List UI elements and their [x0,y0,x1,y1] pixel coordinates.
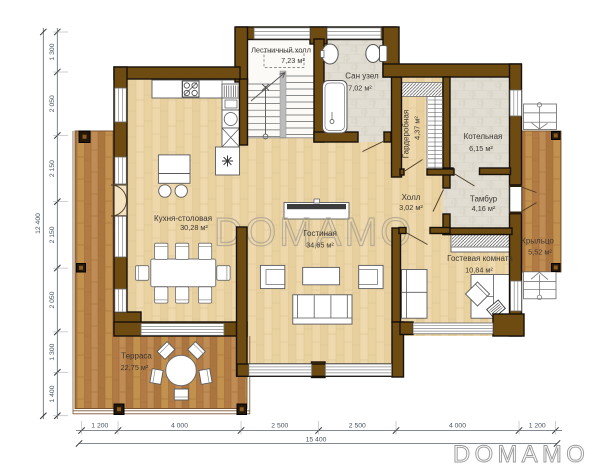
svg-text:DOMAMO: DOMAMO [453,441,589,468]
svg-text:4 000: 4 000 [171,423,188,430]
svg-text:2 050: 2 050 [49,291,56,308]
svg-text:34,65 м²: 34,65 м² [306,241,334,250]
svg-text:Кухня-столовая: Кухня-столовая [154,214,212,223]
svg-text:6,15 м²: 6,15 м² [469,144,493,153]
svg-text:5,52 м²: 5,52 м² [528,248,552,257]
svg-text:Гостиная: Гостиная [303,229,337,238]
svg-text:7,02 м²: 7,02 м² [348,84,372,93]
svg-text:2 500: 2 500 [271,423,288,430]
svg-text:Крыльцо: Крыльцо [521,237,554,246]
svg-text:Терраса: Терраса [121,352,152,361]
svg-text:2 150: 2 150 [49,226,56,243]
svg-text:1 400: 1 400 [49,385,56,402]
svg-text:Сан узел: Сан узел [345,72,379,81]
svg-text:4 000: 4 000 [449,423,466,430]
svg-text:4,16 м²: 4,16 м² [472,204,496,213]
svg-text:3,02 м²: 3,02 м² [399,203,423,212]
svg-text:Гостевая комната: Гостевая комната [447,254,513,263]
svg-text:1 200: 1 200 [529,423,546,430]
svg-text:2 050: 2 050 [49,95,56,112]
svg-text:10,84 м²: 10,84 м² [465,266,493,275]
svg-text:22,75 м²: 22,75 м² [121,363,149,372]
svg-text:Холл: Холл [402,193,421,202]
svg-text:12 400: 12 400 [35,213,42,234]
svg-text:1 300: 1 300 [49,343,56,360]
svg-text:Тамбур: Тамбур [470,195,498,204]
svg-text:1 300: 1 300 [49,43,56,60]
svg-text:15 400: 15 400 [306,437,327,444]
svg-text:30,28 м²: 30,28 м² [180,223,208,232]
svg-text:Гардеробная: Гардеробная [402,110,411,158]
svg-text:2 500: 2 500 [349,423,366,430]
svg-text:7,23 м²: 7,23 м² [281,56,305,65]
svg-text:Лестничный холл: Лестничный холл [251,46,311,55]
svg-text:Котельная: Котельная [464,132,503,141]
svg-text:2 150: 2 150 [49,160,56,177]
svg-text:1 200: 1 200 [91,423,108,430]
svg-text:4,37 м²: 4,37 м² [413,116,422,140]
